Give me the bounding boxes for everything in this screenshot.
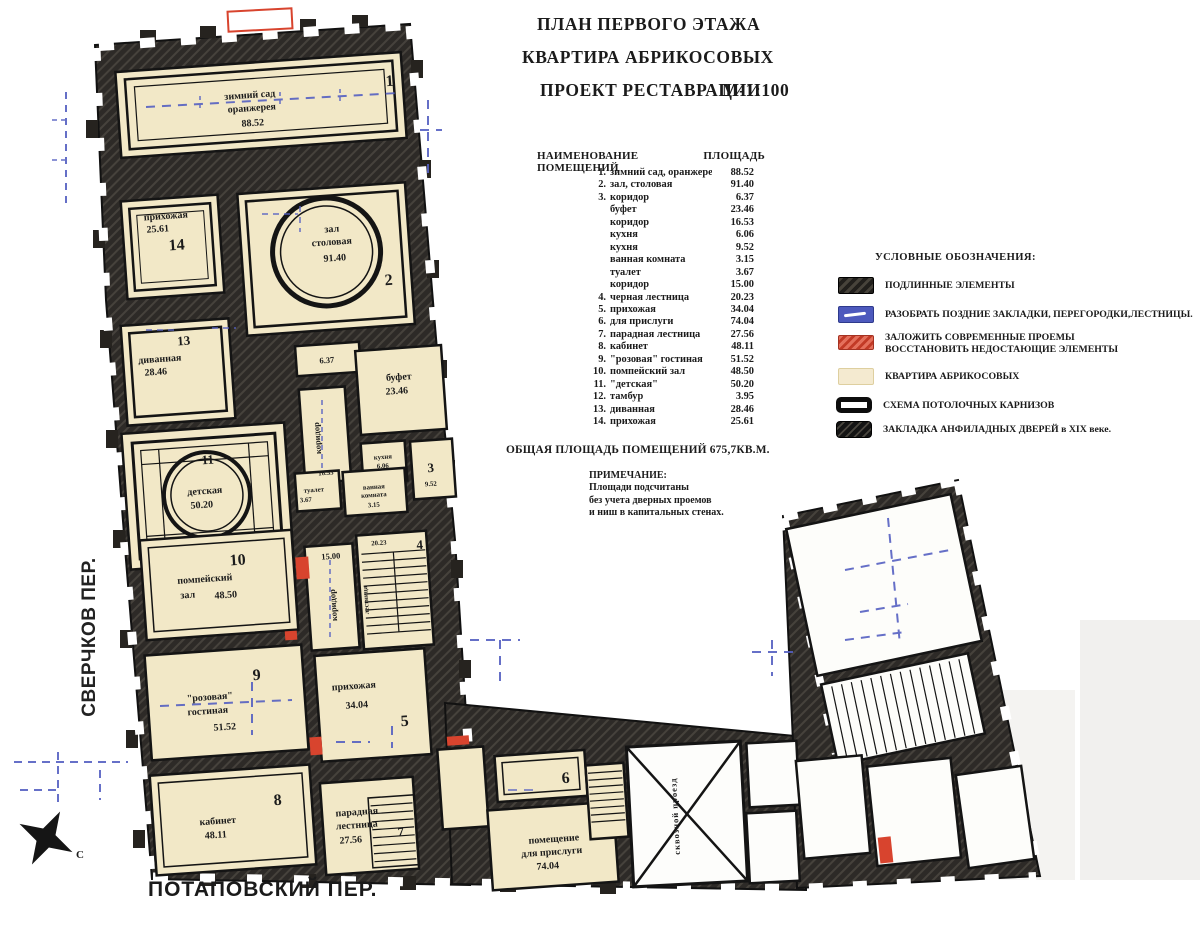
room-list-area: 50.20	[712, 379, 754, 391]
room-list-number: 12.	[586, 391, 606, 403]
svg-text:34.04: 34.04	[345, 699, 368, 712]
swatch-infill	[836, 421, 872, 438]
room-list-area: 6.06	[712, 229, 754, 241]
room-list-number: 13.	[586, 404, 606, 416]
room-list-number	[586, 279, 606, 291]
room-list-name: коридор	[610, 192, 712, 204]
note-line: и ниш в капитальных стенах.	[589, 507, 724, 519]
total-area: ОБЩАЯ ПЛОЩАДЬ ПОМЕЩЕНИЙ 675,7КВ.М.	[506, 444, 770, 456]
num-room11: 11	[201, 452, 214, 468]
title-line1: ПЛАН ПЕРВОГО ЭТАЖА	[537, 14, 760, 35]
room-list-area: 51.52	[712, 354, 754, 366]
room-list-row: 6. для прислуги 74.04	[586, 316, 754, 328]
note-title: ПРИМЕЧАНИЕ:	[589, 470, 724, 482]
svg-text:48.50: 48.50	[214, 589, 237, 602]
room-list-row: ванная комната 3.15	[586, 254, 754, 266]
room-list-row: 9. "розовая" гостиная 51.52	[586, 354, 754, 366]
legend-item-cornice: СХЕМА ПОТОЛОЧНЫХ КАРНИЗОВ	[836, 397, 1054, 413]
svg-text:3.15: 3.15	[368, 502, 381, 510]
room-list-area: 74.04	[712, 316, 754, 328]
room-list-number: 3.	[586, 192, 606, 204]
room-list-name: тамбур	[610, 391, 712, 403]
room-list-row: 10. помпейский зал 48.50	[586, 366, 754, 378]
num-room5: 5	[400, 713, 409, 731]
num-room2: 2	[384, 272, 393, 290]
room-list-row: 5. прихожая 34.04	[586, 304, 754, 316]
svg-text:91.40: 91.40	[323, 252, 346, 265]
svg-text:51.52: 51.52	[213, 721, 236, 734]
room-list-number: 11.	[586, 379, 606, 391]
room-list-area: 23.46	[712, 204, 754, 216]
svg-text:28.46: 28.46	[144, 366, 167, 379]
num-room14: 14	[168, 236, 185, 254]
svg-text:27.56: 27.56	[339, 834, 362, 847]
room-list-row: 4. черная лестница 20.23	[586, 292, 754, 304]
room-list-number: 14.	[586, 416, 606, 428]
room-list-name: кабинет	[610, 341, 712, 353]
svg-text:16.53: 16.53	[318, 469, 334, 477]
room-list-name: зимний сад, оранжерея	[610, 167, 712, 179]
room-list-name: диванная	[610, 404, 712, 416]
room-list-number: 7.	[586, 329, 606, 341]
label-kitchen606: кухня	[374, 453, 393, 461]
room-list-row: кухня 9.52	[586, 242, 754, 254]
annex-room-c	[956, 766, 1034, 868]
room-list-row: 2. зал, столовая 91.40	[586, 179, 754, 191]
note-line: без учета дверных проемов	[589, 495, 724, 507]
room-list-name: ванная комната	[610, 254, 712, 266]
room-list-name: коридор	[610, 217, 712, 229]
room-list-name: кухня	[610, 242, 712, 254]
title-scale: М-1:100	[722, 80, 789, 101]
room-list-area: 27.56	[712, 329, 754, 341]
stairs-small	[585, 763, 628, 839]
svg-text:23.46: 23.46	[385, 385, 408, 398]
room-list-name: туалет	[610, 267, 712, 279]
room-list-area: 28.46	[712, 404, 754, 416]
room-list-area: 9.52	[712, 242, 754, 254]
room-list-area: 3.95	[712, 391, 754, 403]
legend-item-infill: ЗАКЛАДКА АНФИЛАДНЫХ ДВЕРЕЙ в XIX веке.	[836, 421, 1111, 438]
room-list-row: 7. парадная лестница 27.56	[586, 329, 754, 341]
legend-item-restore: ЗАЛОЖИТЬ СОВРЕМЕННЫЕ ПРОЕМЫ ВОССТАНОВИТЬ…	[838, 332, 1185, 355]
svg-text:9.52: 9.52	[425, 481, 438, 489]
room-list-name: прихожая	[610, 304, 712, 316]
label-corridor637: 6.37	[319, 354, 335, 365]
room-list-area: 3.15	[712, 254, 754, 266]
num-room13: 13	[177, 333, 192, 349]
room-list-number: 6.	[586, 316, 606, 328]
swatch-cornice	[836, 397, 872, 413]
street-sverchkov: СВЕРЧКОВ ПЕР.	[79, 557, 101, 717]
room-6	[495, 750, 588, 802]
annex-room-a	[796, 755, 870, 858]
svg-text:50.20: 50.20	[190, 499, 213, 512]
room-list-number: 10.	[586, 366, 606, 378]
swatch-original-elements	[838, 277, 874, 294]
num-room10: 10	[229, 551, 246, 569]
corridor-1653	[299, 387, 351, 484]
room-side-a	[746, 741, 799, 808]
room-list-name: для прислуги	[610, 316, 712, 328]
room-list-number	[586, 217, 606, 229]
room-list-row: 13. диванная 28.46	[586, 404, 754, 416]
room-list-area: 15.00	[712, 279, 754, 291]
room-list-number	[586, 242, 606, 254]
passage-court	[626, 741, 747, 887]
legend-item-dismantle: РАЗОБРАТЬ ПОЗДНИЕ ЗАКЛАДКИ, ПЕРЕГОРОДКИ,…	[838, 306, 1193, 323]
svg-text:88.52: 88.52	[241, 117, 264, 130]
room-hallway-5	[314, 648, 431, 761]
room-list-name: зал, столовая	[610, 179, 712, 191]
svg-text:6.06: 6.06	[377, 463, 390, 471]
room-list-row: 11. "детская" 50.20	[586, 379, 754, 391]
room-list-name: помпейский зал	[610, 366, 712, 378]
room-list-row: 3. коридор 6.37	[586, 192, 754, 204]
room-list-name: черная лестница	[610, 292, 712, 304]
swatch-apartment	[838, 368, 874, 385]
room-pompeian-10	[140, 530, 299, 640]
room-list-row: 8. кабинет 48.11	[586, 341, 754, 353]
room-list-number: 8.	[586, 341, 606, 353]
room-list-name: коридор	[610, 279, 712, 291]
room-list-number: 5.	[586, 304, 606, 316]
room-list-number	[586, 267, 606, 279]
svg-text:3.67: 3.67	[300, 497, 313, 505]
num-room6: 6	[561, 770, 570, 788]
room-list-number: 2.	[586, 179, 606, 191]
room-list-area: 25.61	[712, 416, 754, 428]
room-list-number	[586, 229, 606, 241]
room-list-name: парадная лестница	[610, 329, 712, 341]
svg-text:48.11: 48.11	[204, 829, 227, 842]
room-list-area: 48.50	[712, 366, 754, 378]
label-stairs4: 20.23	[371, 539, 387, 547]
legend-item-original: ПОДЛИННЫЕ ЭЛЕМЕНТЫ	[838, 277, 1015, 294]
room-list-area: 3.67	[712, 267, 754, 279]
num-room9: 9	[252, 667, 261, 685]
floor-plan-page: зимний сад оранжерея 88.52 1 зал столова…	[0, 0, 1200, 939]
room-list-area: 88.52	[712, 167, 754, 179]
label-wc: туалет	[304, 486, 325, 494]
room-list-area: 6.37	[712, 192, 754, 204]
scan-shadow	[1080, 620, 1200, 880]
room-list-area: 20.23	[712, 292, 754, 304]
label-corridor1500: 15.00	[321, 550, 341, 561]
room-list-row: коридор 15.00	[586, 279, 754, 291]
room-list-number	[586, 204, 606, 216]
room-list-number	[586, 254, 606, 266]
label-room2: зал	[324, 223, 340, 235]
num-room8: 8	[273, 792, 282, 810]
compass: С	[5, 797, 86, 878]
swatch-dismantle	[838, 306, 874, 323]
room-list-row: 14. прихожая 25.61	[586, 416, 754, 428]
label-buffet: буфет	[386, 371, 412, 384]
swatch-restore	[838, 335, 874, 350]
note-line: Площади подсчитаны	[589, 482, 724, 494]
num-room1: 1	[385, 73, 394, 91]
room-list-row: буфет 23.46	[586, 204, 754, 216]
svg-text:зал: зал	[180, 589, 196, 601]
room-list-area: 48.11	[712, 341, 754, 353]
room-list-number: 1.	[586, 167, 606, 179]
room-list-row: туалет 3.67	[586, 267, 754, 279]
room-list-name: "детская"	[610, 379, 712, 391]
svg-text:74.04: 74.04	[536, 860, 559, 873]
compass-north-label: С	[76, 849, 84, 861]
room-tambour-12	[437, 746, 488, 829]
room-list-name: "розовая" гостиная	[610, 354, 712, 366]
room-list-row: 12. тамбур 3.95	[586, 391, 754, 403]
room-list-number: 9.	[586, 354, 606, 366]
room-list-row: 1. зимний сад, оранжерея 88.52	[586, 167, 754, 179]
room-list-row: кухня 6.06	[586, 229, 754, 241]
room-list-rows: 1. зимний сад, оранжерея 88.52 2. зал, с…	[586, 167, 754, 429]
svg-text:25.61: 25.61	[146, 223, 169, 236]
room-list-name: кухня	[610, 229, 712, 241]
room-list-area: 34.04	[712, 304, 754, 316]
title-line2: КВАРТИРА АБРИКОСОВЫХ	[522, 47, 774, 68]
note-block: ПРИМЕЧАНИЕ: Площади подсчитаны без учета…	[589, 470, 724, 519]
legend-item-apartment: КВАРТИРА АБРИКОСОВЫХ	[838, 368, 1019, 385]
room-list-area: 91.40	[712, 179, 754, 191]
street-potapovsky: ПОТАПОВСКИЙ ПЕР.	[148, 878, 377, 902]
legend-header: УСЛОВНЫЕ ОБОЗНАЧЕНИЯ:	[875, 252, 1036, 263]
room-list-name: буфет	[610, 204, 712, 216]
room-side-b	[746, 811, 800, 884]
room-list-area: 16.53	[712, 217, 754, 229]
room-list-row: коридор 16.53	[586, 217, 754, 229]
room-list-number: 4.	[586, 292, 606, 304]
room-list-name: прихожая	[610, 416, 712, 428]
